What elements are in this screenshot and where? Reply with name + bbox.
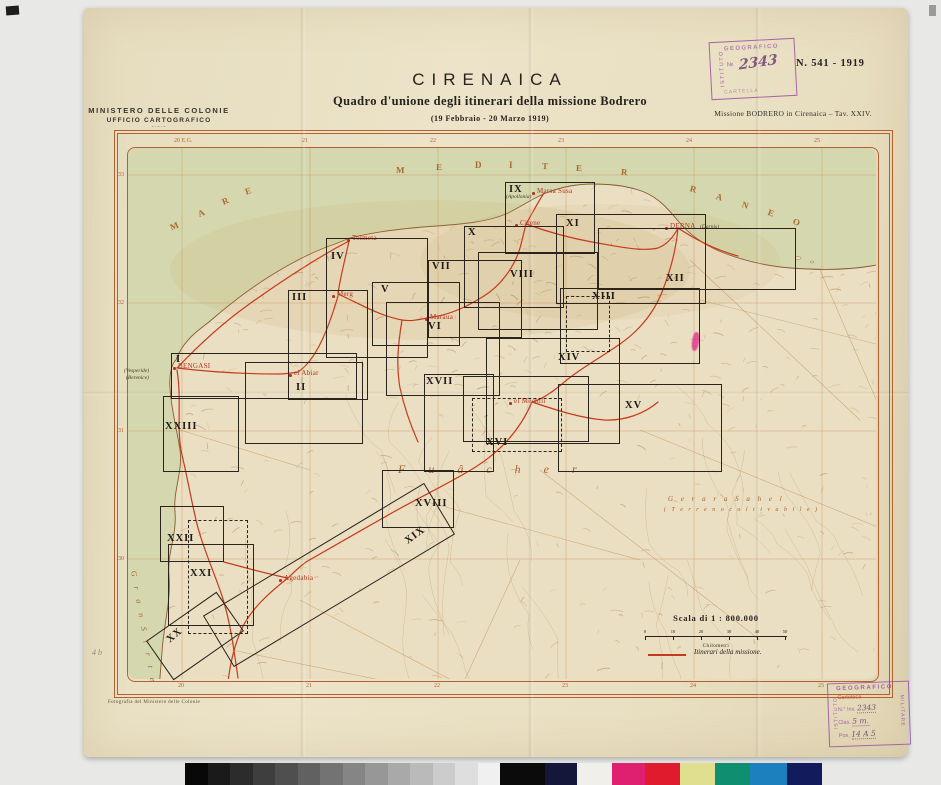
calibration-gray-step [253,763,276,785]
scale-tick [757,636,758,640]
sea-label-mediterraneo-letter: E [436,162,442,172]
sheet-label-I: I [176,354,181,365]
scale-tick-number: 10 [671,629,676,634]
stamp-cartoteca: Cartoteca [837,694,861,701]
graticule-label-left: 30 [118,556,124,562]
graticule-label-bottom: 22 [434,683,440,689]
sheet-label-XV: XV [625,400,642,411]
place-label: (Vesperide) [124,368,149,374]
graticule-label-top: 21 [302,138,308,144]
sheet-rect [472,398,562,452]
scale-bar: 01020304050 [645,629,787,641]
sheet-rect-XII [598,228,796,290]
scale-tick [645,636,646,640]
stamp-pos-row: Pos. 14 A 5 [839,729,876,739]
graticule-label-top: 23 [558,138,564,144]
legend-route-swatch [648,654,686,656]
sea-label-mediterraneo-letter: E [576,163,582,173]
sheet-label-X: X [468,227,477,238]
sea-label-mediterraneo-letter: R [621,167,628,178]
calibration-color-patch [787,763,822,785]
sheet-label-XIV: XIV [558,352,580,363]
graticule-label-top: 24 [686,138,692,144]
scan-corner-mark-right [929,5,936,16]
calibration-gray-step [343,763,366,785]
sea-label-mediterraneo-letter: T [542,161,548,171]
stamp-inv-value: 2343 [857,703,876,714]
calibration-color-patch [680,763,715,785]
graticule-label-top: 25 [814,138,820,144]
sheet-label-V: V [381,284,390,295]
calibration-color-patch [500,763,545,785]
legend-label: Itinerari della missione. [694,648,761,656]
calibration-gray-step [433,763,456,785]
sheet-label-XII: XII [666,273,685,284]
scale-bar-line [645,636,787,637]
calibration-gray-step [388,763,411,785]
graticule-label-bottom: 23 [562,683,568,689]
calibration-gray-step [320,763,343,785]
archive-stamp-bottom: GEOGRAFICO ISTITUTO MILITARE Cartoteca N… [827,681,911,748]
scale-tick [785,636,786,640]
calibration-gray-step [410,763,433,785]
scale-title: Scala di 1 : 800.000 [645,613,787,623]
graticule-label-bottom: 21 [306,683,312,689]
place-label: (Berenice) [126,375,149,381]
scale-tick [701,636,702,640]
calibration-color-patch [577,763,612,785]
stamp-org-vertical: ISTITUTO [718,50,726,87]
calibration-gray-step [230,763,253,785]
graticule-label-left: 33 [118,172,124,178]
calibration-gray-step [275,763,298,785]
stamp-clas-row: Clas. 5 m. [838,716,869,726]
scan-corner-mark-left [6,6,20,16]
sheet-rect-XXIII [163,396,239,472]
calibration-gray-step [208,763,231,785]
photo-credit: Fotografia del Ministero delle Colonie [108,700,200,705]
scale-tick [673,636,674,640]
sheet-label-XXIII: XXIII [165,421,197,432]
graticule-label-bottom: 25 [818,683,824,689]
sea-label-mediterraneo-letter: D [475,160,482,170]
library-stamp-top: ISTITUTO GEOGRAFICO № 2343 CARTELLA [709,38,798,100]
stamp-clas-label: Clas. [838,720,851,726]
sheet-label-XI: XI [566,218,580,229]
calibration-gray-step [478,763,501,785]
ministry-rule: -·-·- [78,124,240,130]
map-date-line: (19 Febbraio - 20 Marzo 1919) [290,114,690,123]
scale-tick-number: 50 [783,629,788,634]
title-block: CIRENAICA Quadro d'unione degli itinerar… [290,70,690,123]
map-title: CIRENAICA [290,70,690,90]
stamp-pos-label: Pos. [839,733,850,739]
stamp-right-vertical: MILITARE [898,695,905,727]
scale-tick-number: 40 [755,629,760,634]
scale-tick-number: 30 [727,629,732,634]
ministry-block: MINISTERO DELLE COLONIE UFFICIO CARTOGRA… [78,106,240,130]
calibration-color-patch [750,763,787,785]
scale-block: Scala di 1 : 800.000 01020304050 Chilome… [645,613,787,649]
stamp-arc-text: GEOGRAFICO [836,684,893,692]
scale-tick [729,636,730,640]
region-label: G e r a r a S a h e l [668,495,785,503]
scanned-map-page: { "header": { "ministry_line1": "MINISTE… [0,0,941,785]
graticule-label-top: 22 [430,138,436,144]
graticule-label-bottom: 24 [690,683,696,689]
sheet-rect [188,520,248,634]
sheet-label-IX: IX [509,184,523,195]
region-label: ( T e r r e n o c o l t i v a b i l e ) [664,507,819,513]
sheet-label-VII: VII [432,261,451,272]
sheet-label-XVII: XVII [426,376,453,387]
stamp-line1: GEOGRAFICO [724,44,779,53]
sheet-label-IV: IV [331,251,345,262]
calibration-gray-step [298,763,321,785]
graticule-label-bottom: 20 [178,683,184,689]
sheet-label-III: III [292,292,307,303]
sea-label-mediterraneo-letter: M [396,165,405,175]
stamp-number-label: № [727,62,734,68]
scale-tick-number: 20 [699,629,704,634]
mission-caption: Missione BODRERO in Cirenaica – Tav. XXI… [688,109,898,118]
graticule-label-left: 32 [118,300,124,306]
stamp-line2: CARTELLA [724,88,759,96]
graticule-label-left: 31 [118,428,124,434]
sea-label-mediterraneo-letter: I [509,160,513,170]
stamp-inv-label: N.° Inv. [838,706,856,713]
calibration-gray-step [455,763,478,785]
calibration-gray-step [185,763,208,785]
graticule-label-top: 20 E.G. [174,138,193,144]
calibration-color-patch [715,763,750,785]
stamp-inv-row: N.° Inv. 2343 [838,703,877,713]
ministry-line2: UFFICIO CARTOGRAFICO [78,117,240,124]
sheet-rect-X [464,226,564,308]
stamp-pos-value: 14 A 5 [851,729,876,740]
stamp-clas-value: 5 m. [852,716,869,727]
calibration-gray-step [365,763,388,785]
calibration-color-patch [612,763,645,785]
sheet-rect [566,296,610,352]
calibration-color-patch [545,763,577,785]
pencil-note: 4 b [92,648,102,657]
document-number: N. 541 - 1919 [796,58,865,69]
calibration-color-patch [645,763,680,785]
islet [810,261,814,263]
scale-tick-number: 0 [644,629,646,634]
map-subtitle: Quadro d'unione degli itinerari della mi… [290,94,690,109]
ministry-line1: MINISTERO DELLE COLONIE [78,106,240,115]
stamp-handwritten-number: 2343 [739,52,778,74]
